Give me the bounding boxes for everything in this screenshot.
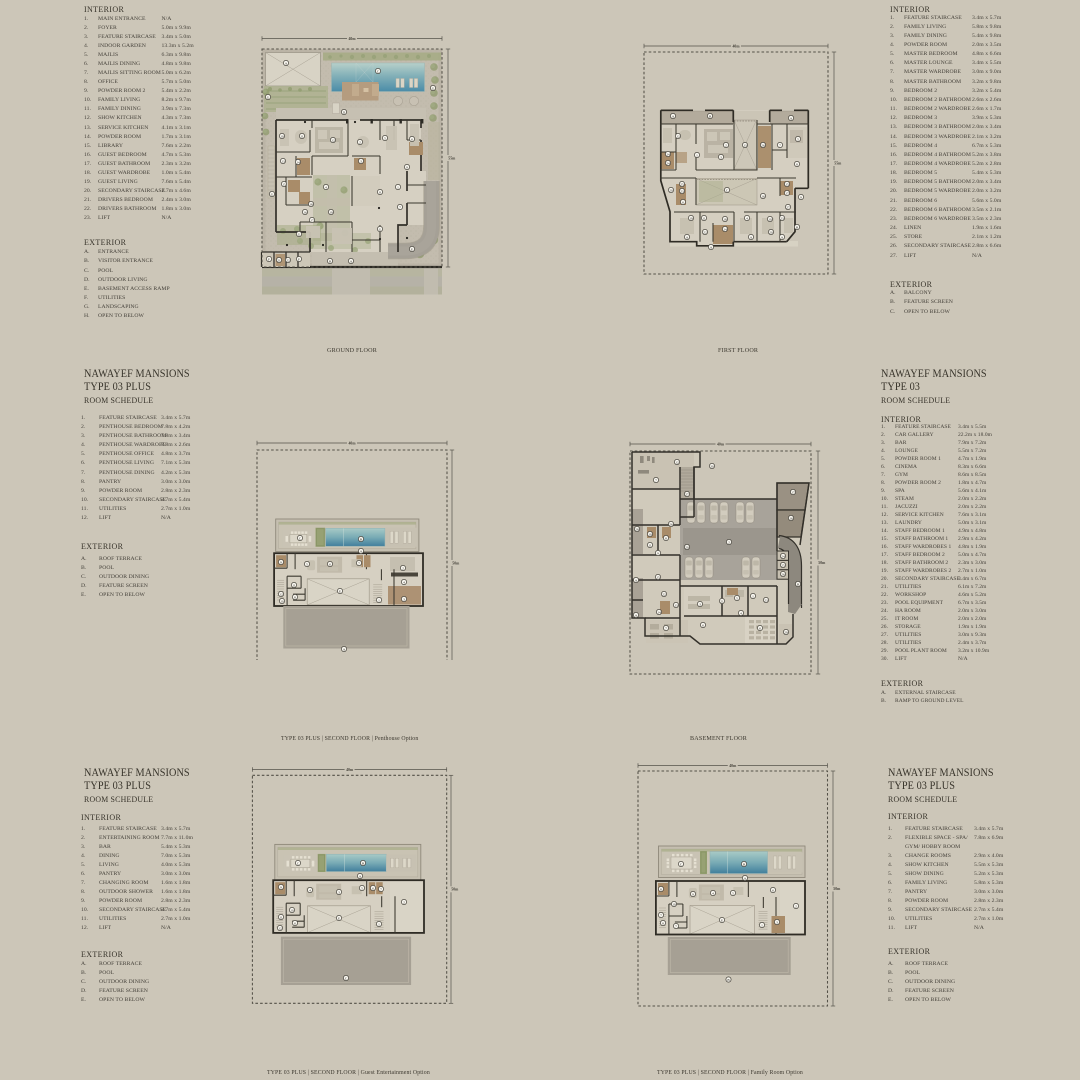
svg-text:24: 24 <box>781 554 785 558</box>
svg-text:13: 13 <box>281 159 285 163</box>
svg-text:19: 19 <box>329 210 333 214</box>
svg-text:50m: 50m <box>818 561 826 565</box>
svg-text:10: 10 <box>768 217 772 221</box>
svg-text:9: 9 <box>406 165 408 169</box>
svg-text:6: 6 <box>372 886 374 890</box>
svg-text:22: 22 <box>703 230 707 234</box>
svg-text:5: 5 <box>797 137 799 141</box>
svg-text:11: 11 <box>702 216 706 220</box>
svg-text:15: 15 <box>282 182 286 186</box>
svg-text:30: 30 <box>710 464 714 468</box>
svg-text:1: 1 <box>378 598 380 602</box>
svg-text:4: 4 <box>403 580 405 584</box>
svg-text:8: 8 <box>662 921 664 925</box>
svg-text:5: 5 <box>384 136 386 140</box>
svg-text:12: 12 <box>676 134 680 138</box>
svg-text:1: 1 <box>696 153 698 157</box>
svg-text:2: 2 <box>403 900 405 904</box>
svg-text:8: 8 <box>379 190 381 194</box>
svg-text:5: 5 <box>732 891 734 895</box>
svg-text:5: 5 <box>306 562 308 566</box>
svg-text:22: 22 <box>286 258 290 262</box>
svg-text:21: 21 <box>720 599 724 603</box>
svg-text:6: 6 <box>329 562 331 566</box>
svg-text:17: 17 <box>791 490 795 494</box>
svg-text:20: 20 <box>769 230 773 234</box>
svg-text:9: 9 <box>280 885 282 889</box>
svg-text:19: 19 <box>689 216 693 220</box>
svg-text:2: 2 <box>725 143 727 147</box>
svg-text:12: 12 <box>278 926 282 930</box>
svg-text:10: 10 <box>280 599 284 603</box>
svg-text:9: 9 <box>692 892 694 896</box>
svg-text:8: 8 <box>665 536 667 540</box>
svg-text:29: 29 <box>784 630 788 634</box>
svg-text:40m: 40m <box>733 45 741 49</box>
svg-text:12: 12 <box>331 138 335 142</box>
svg-text:11: 11 <box>279 915 283 919</box>
svg-text:12: 12 <box>675 460 679 464</box>
svg-text:14: 14 <box>666 152 670 156</box>
svg-text:1: 1 <box>761 923 763 927</box>
svg-text:28: 28 <box>635 527 639 531</box>
svg-text:7: 7 <box>380 887 382 891</box>
svg-text:50m: 50m <box>452 561 460 565</box>
svg-text:9: 9 <box>800 195 802 199</box>
svg-text:10: 10 <box>280 134 284 138</box>
svg-text:5: 5 <box>361 886 363 890</box>
svg-text:26: 26 <box>781 572 785 576</box>
svg-text:23: 23 <box>680 189 684 193</box>
svg-text:E: E <box>411 247 413 251</box>
svg-text:16: 16 <box>761 194 765 198</box>
svg-text:1: 1 <box>378 922 380 926</box>
svg-text:23: 23 <box>764 598 768 602</box>
svg-text:20: 20 <box>685 545 689 549</box>
svg-text:6: 6 <box>772 888 774 892</box>
svg-text:25: 25 <box>680 182 684 186</box>
svg-text:27: 27 <box>685 492 689 496</box>
svg-text:20: 20 <box>669 188 673 192</box>
svg-text:24: 24 <box>666 161 670 165</box>
svg-text:21: 21 <box>277 258 281 262</box>
svg-text:E: E <box>339 589 341 593</box>
svg-text:E: E <box>338 916 340 920</box>
svg-text:16: 16 <box>303 210 307 214</box>
svg-text:3: 3 <box>338 890 340 894</box>
svg-text:18: 18 <box>723 217 727 221</box>
svg-text:9: 9 <box>280 560 282 564</box>
svg-text:16: 16 <box>789 516 793 520</box>
svg-text:17: 17 <box>310 218 314 222</box>
svg-text:14: 14 <box>296 160 300 164</box>
svg-text:1: 1 <box>752 594 754 598</box>
svg-text:2: 2 <box>795 904 797 908</box>
svg-text:6: 6 <box>682 200 684 204</box>
svg-text:50m: 50m <box>451 888 459 892</box>
svg-text:13: 13 <box>743 143 747 147</box>
svg-text:15: 15 <box>785 182 789 186</box>
svg-text:40m: 40m <box>717 443 725 447</box>
svg-text:11: 11 <box>292 583 296 587</box>
svg-text:40m: 40m <box>349 442 357 446</box>
svg-text:F: F <box>268 257 270 261</box>
svg-text:12: 12 <box>279 592 283 596</box>
svg-text:3: 3 <box>403 597 405 601</box>
svg-text:F: F <box>298 257 300 261</box>
svg-text:55m: 55m <box>448 156 456 160</box>
svg-text:2: 2 <box>728 540 730 544</box>
svg-text:5: 5 <box>736 596 738 600</box>
svg-text:27: 27 <box>786 205 790 209</box>
svg-text:8: 8 <box>294 595 296 599</box>
svg-text:40m: 40m <box>346 768 354 772</box>
svg-text:8: 8 <box>796 162 798 166</box>
svg-text:6: 6 <box>294 921 296 925</box>
svg-text:26: 26 <box>669 522 673 526</box>
svg-text:7: 7 <box>655 478 657 482</box>
svg-text:7: 7 <box>675 924 677 928</box>
svg-text:10: 10 <box>290 908 294 912</box>
svg-text:4: 4 <box>746 216 748 220</box>
svg-text:40m: 40m <box>729 764 737 768</box>
svg-text:15: 15 <box>656 575 660 579</box>
svg-text:E: E <box>721 918 723 922</box>
svg-text:2: 2 <box>359 140 361 144</box>
svg-text:4: 4 <box>325 185 327 189</box>
svg-text:10: 10 <box>672 902 676 906</box>
svg-text:3: 3 <box>360 159 362 163</box>
svg-text:40m: 40m <box>349 37 357 41</box>
svg-text:7: 7 <box>660 913 662 917</box>
svg-text:6: 6 <box>702 623 704 627</box>
svg-text:6: 6 <box>759 626 761 630</box>
svg-text:7: 7 <box>665 626 667 630</box>
svg-text:7: 7 <box>779 143 781 147</box>
svg-text:14: 14 <box>657 610 661 614</box>
svg-text:14: 14 <box>723 227 727 231</box>
svg-text:3: 3 <box>720 155 722 159</box>
svg-text:22: 22 <box>662 592 666 596</box>
svg-text:7: 7 <box>358 561 360 565</box>
svg-text:3: 3 <box>776 920 778 924</box>
svg-text:26: 26 <box>761 143 765 147</box>
svg-text:55m: 55m <box>834 161 842 165</box>
svg-text:8: 8 <box>660 887 662 891</box>
svg-text:17: 17 <box>785 191 789 195</box>
svg-text:1: 1 <box>397 185 399 189</box>
svg-text:50m: 50m <box>833 887 841 891</box>
svg-text:4: 4 <box>712 891 714 895</box>
svg-text:7: 7 <box>399 205 401 209</box>
svg-text:13: 13 <box>674 603 678 607</box>
svg-text:4: 4 <box>309 888 311 892</box>
svg-text:9: 9 <box>657 551 659 555</box>
svg-text:25: 25 <box>781 563 785 567</box>
svg-text:6: 6 <box>411 137 413 141</box>
svg-text:18: 18 <box>309 202 313 206</box>
svg-text:2: 2 <box>402 566 404 570</box>
svg-text:11: 11 <box>648 543 652 547</box>
svg-text:4: 4 <box>740 611 742 615</box>
svg-text:10: 10 <box>648 532 652 536</box>
svg-text:11: 11 <box>300 134 304 138</box>
svg-text:23: 23 <box>780 216 784 220</box>
svg-text:3: 3 <box>699 602 701 606</box>
